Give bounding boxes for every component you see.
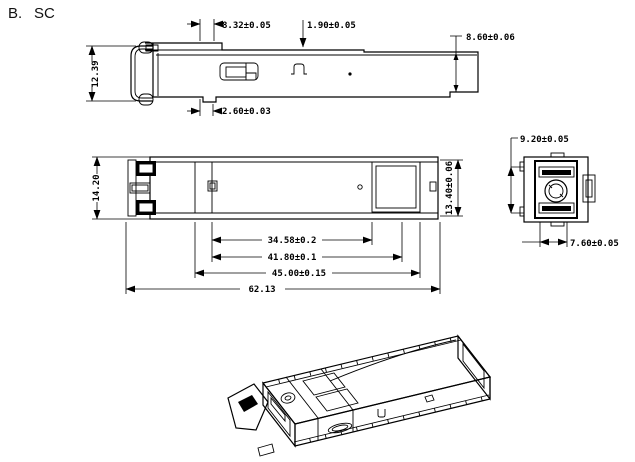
top-view: 14.20 13.40±0.06 34.58±0.2 41.80±0.1 45.… (92, 157, 463, 295)
technical-drawing: B. SC (0, 0, 635, 462)
pin-dot (348, 72, 351, 75)
title-index: B. (8, 5, 22, 22)
emi-fingers-bottom (310, 397, 483, 442)
sc-latch (583, 175, 595, 202)
dim-label-body-width: 13.40±0.06 (445, 161, 455, 215)
end-view: 9.20±0.05 7.60±0.05 (511, 135, 619, 249)
vent-mark (291, 64, 307, 74)
dim-label-front-height: 12.39 (91, 60, 101, 87)
isometric-view (228, 336, 490, 456)
dim-label-overall-length: 62.13 (248, 285, 275, 295)
iso-latch-boss (280, 391, 296, 404)
dim-label-recess-depth: 1.90±0.05 (307, 21, 356, 31)
dim-label-housing-height: 9.20±0.05 (520, 135, 569, 145)
side-view-outline (131, 42, 478, 105)
dim-label-length-to-seam: 34.58±0.2 (268, 236, 317, 246)
dim-label-body-height: 8.60±0.06 (466, 33, 515, 43)
rear-cutout (372, 162, 420, 212)
end-view-outline (520, 153, 595, 226)
top-view-outline (128, 157, 438, 219)
dim-label-overall-width: 14.20 (92, 174, 102, 201)
pivot-hole (358, 185, 362, 189)
dim-label-port-width: 7.60±0.05 (570, 239, 619, 249)
iso-top-face (263, 336, 490, 424)
iso-side-face (295, 377, 490, 446)
dim-label-length-to-notch: 41.80±0.1 (268, 253, 317, 263)
side-view: 8.32±0.05 1.90±0.05 8.60±0.06 12.39 2.60… (86, 19, 515, 117)
side-view-dimensions: 8.32±0.05 1.90±0.05 8.60±0.06 12.39 2.60… (86, 19, 515, 117)
dim-label-length-to-rear-stop: 45.00±0.15 (272, 269, 326, 279)
dim-label-tab-offset: 8.32±0.05 (222, 21, 271, 31)
emi-fingers-top (279, 338, 452, 383)
title-connector-type: SC (34, 5, 55, 22)
dim-label-bottom-offset: 2.60±0.03 (222, 107, 271, 117)
ferrule-ring (545, 180, 567, 202)
drawing-sheet: B. SC (0, 0, 635, 462)
end-view-dimensions: 9.20±0.05 7.60±0.05 (511, 135, 619, 249)
figure-title: B. SC (8, 5, 55, 22)
latch-keyhole (208, 181, 217, 191)
iso-u-mark (378, 409, 385, 417)
top-view-dimensions: 14.20 13.40±0.06 34.58±0.2 41.80±0.1 45.… (92, 157, 463, 295)
